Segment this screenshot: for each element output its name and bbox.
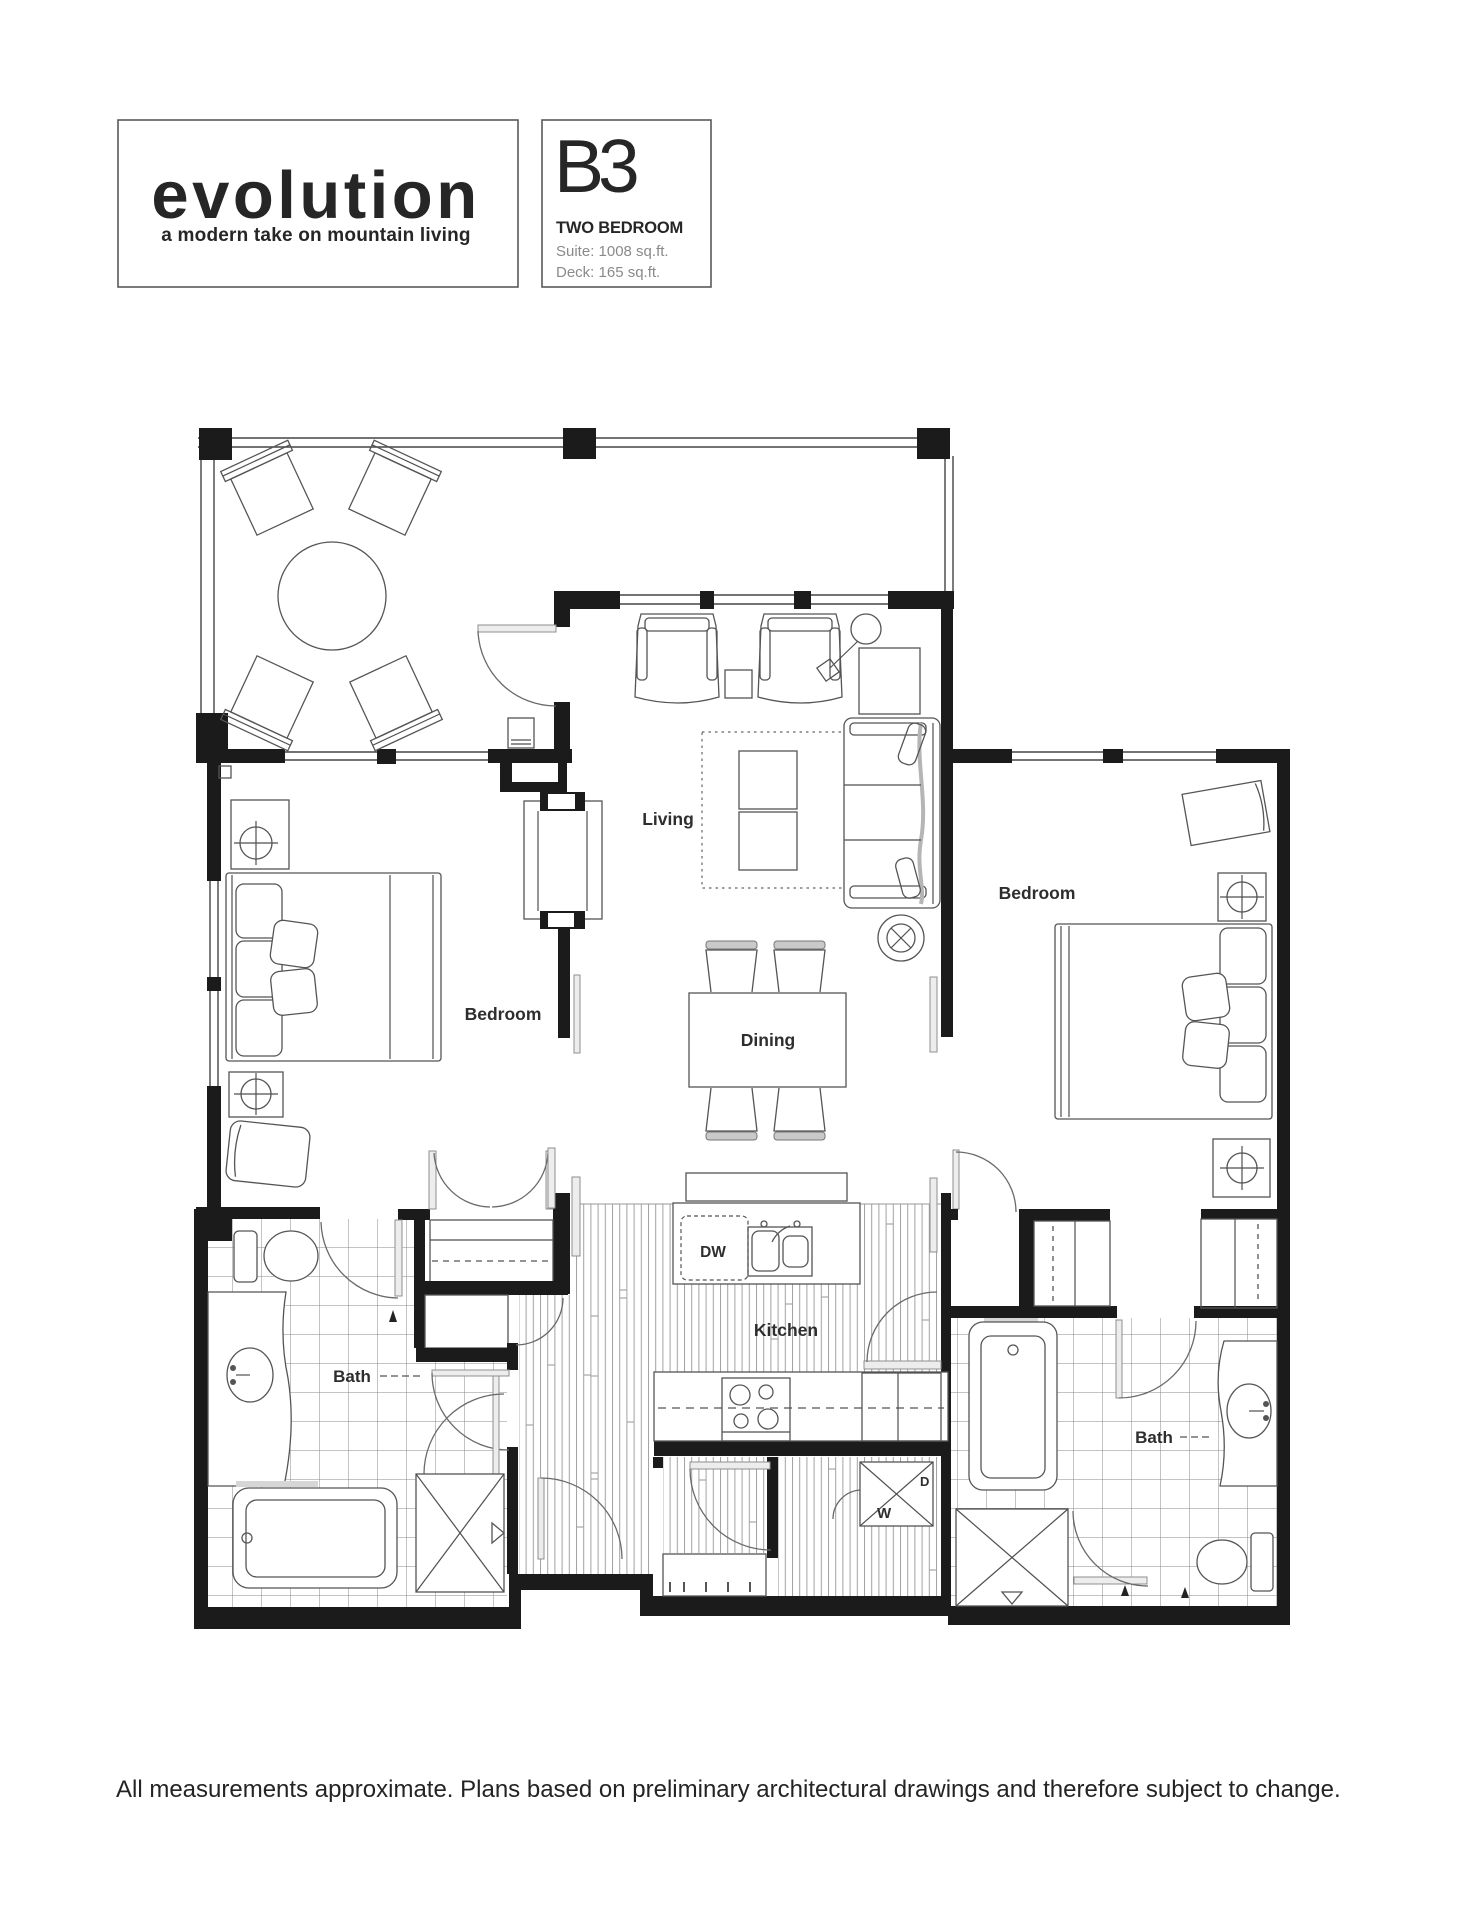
svg-text:Kitchen: Kitchen — [754, 1320, 818, 1340]
svg-text:B3: B3 — [554, 124, 637, 208]
svg-text:Dining: Dining — [741, 1030, 795, 1050]
svg-text:Bedroom: Bedroom — [999, 883, 1076, 903]
svg-text:DW: DW — [700, 1244, 726, 1261]
svg-text:Suite: 1008 sq.ft.: Suite: 1008 sq.ft. — [556, 243, 669, 260]
svg-text:evolution: evolution — [151, 158, 480, 233]
svg-text:D: D — [920, 1474, 929, 1489]
svg-text:Living: Living — [642, 809, 694, 829]
svg-text:Deck: 165 sq.ft.: Deck: 165 sq.ft. — [556, 264, 660, 281]
svg-text:Bath: Bath — [1135, 1428, 1173, 1447]
svg-text:a modern take on mountain livi: a modern take on mountain living — [161, 225, 470, 246]
svg-text:All measurements approximate.: All measurements approximate. Plans base… — [116, 1776, 1341, 1803]
svg-text:TWO BEDROOM: TWO BEDROOM — [556, 219, 683, 237]
svg-text:Bedroom: Bedroom — [465, 1004, 542, 1024]
svg-text:Bath: Bath — [333, 1367, 371, 1386]
svg-text:W: W — [877, 1505, 892, 1522]
